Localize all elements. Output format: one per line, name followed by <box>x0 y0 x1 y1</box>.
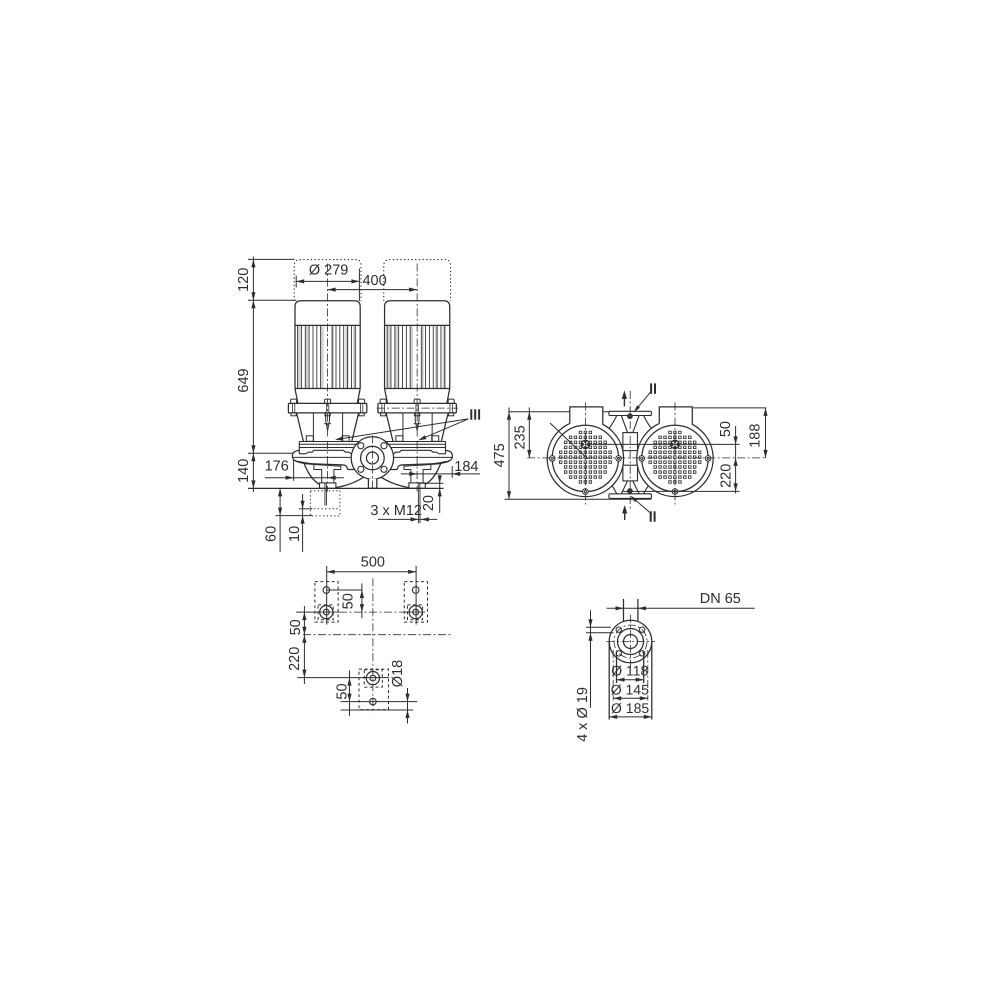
svg-text:3 x M12: 3 x M12 <box>370 503 422 519</box>
svg-text:220: 220 <box>718 464 734 488</box>
svg-text:50: 50 <box>341 593 357 609</box>
svg-text:Ø18: Ø18 <box>390 660 406 687</box>
svg-text:Ø 185: Ø 185 <box>611 700 649 716</box>
svg-text:DN 65: DN 65 <box>700 591 741 607</box>
svg-text:649: 649 <box>236 368 252 392</box>
svg-text:60: 60 <box>263 526 279 542</box>
svg-text:184: 184 <box>454 459 478 475</box>
svg-text:20: 20 <box>421 495 437 511</box>
svg-text:475: 475 <box>492 443 508 467</box>
svg-text:176: 176 <box>265 459 289 475</box>
svg-text:50: 50 <box>718 421 734 437</box>
svg-text:4 x Ø 19: 4 x Ø 19 <box>575 687 591 742</box>
svg-text:Ø 118: Ø 118 <box>611 663 648 679</box>
svg-text:120: 120 <box>236 268 252 292</box>
svg-text:220: 220 <box>287 647 303 671</box>
svg-text:235: 235 <box>513 425 529 449</box>
svg-text:500: 500 <box>361 555 385 571</box>
svg-text:50: 50 <box>288 619 304 635</box>
svg-text:10: 10 <box>287 526 303 542</box>
svg-text:400: 400 <box>362 273 386 289</box>
svg-text:Ø 145: Ø 145 <box>611 682 649 698</box>
svg-text:188: 188 <box>747 424 763 448</box>
svg-text:Ø 279: Ø 279 <box>309 263 349 279</box>
svg-text:140: 140 <box>236 459 252 483</box>
svg-text:50: 50 <box>334 683 350 699</box>
